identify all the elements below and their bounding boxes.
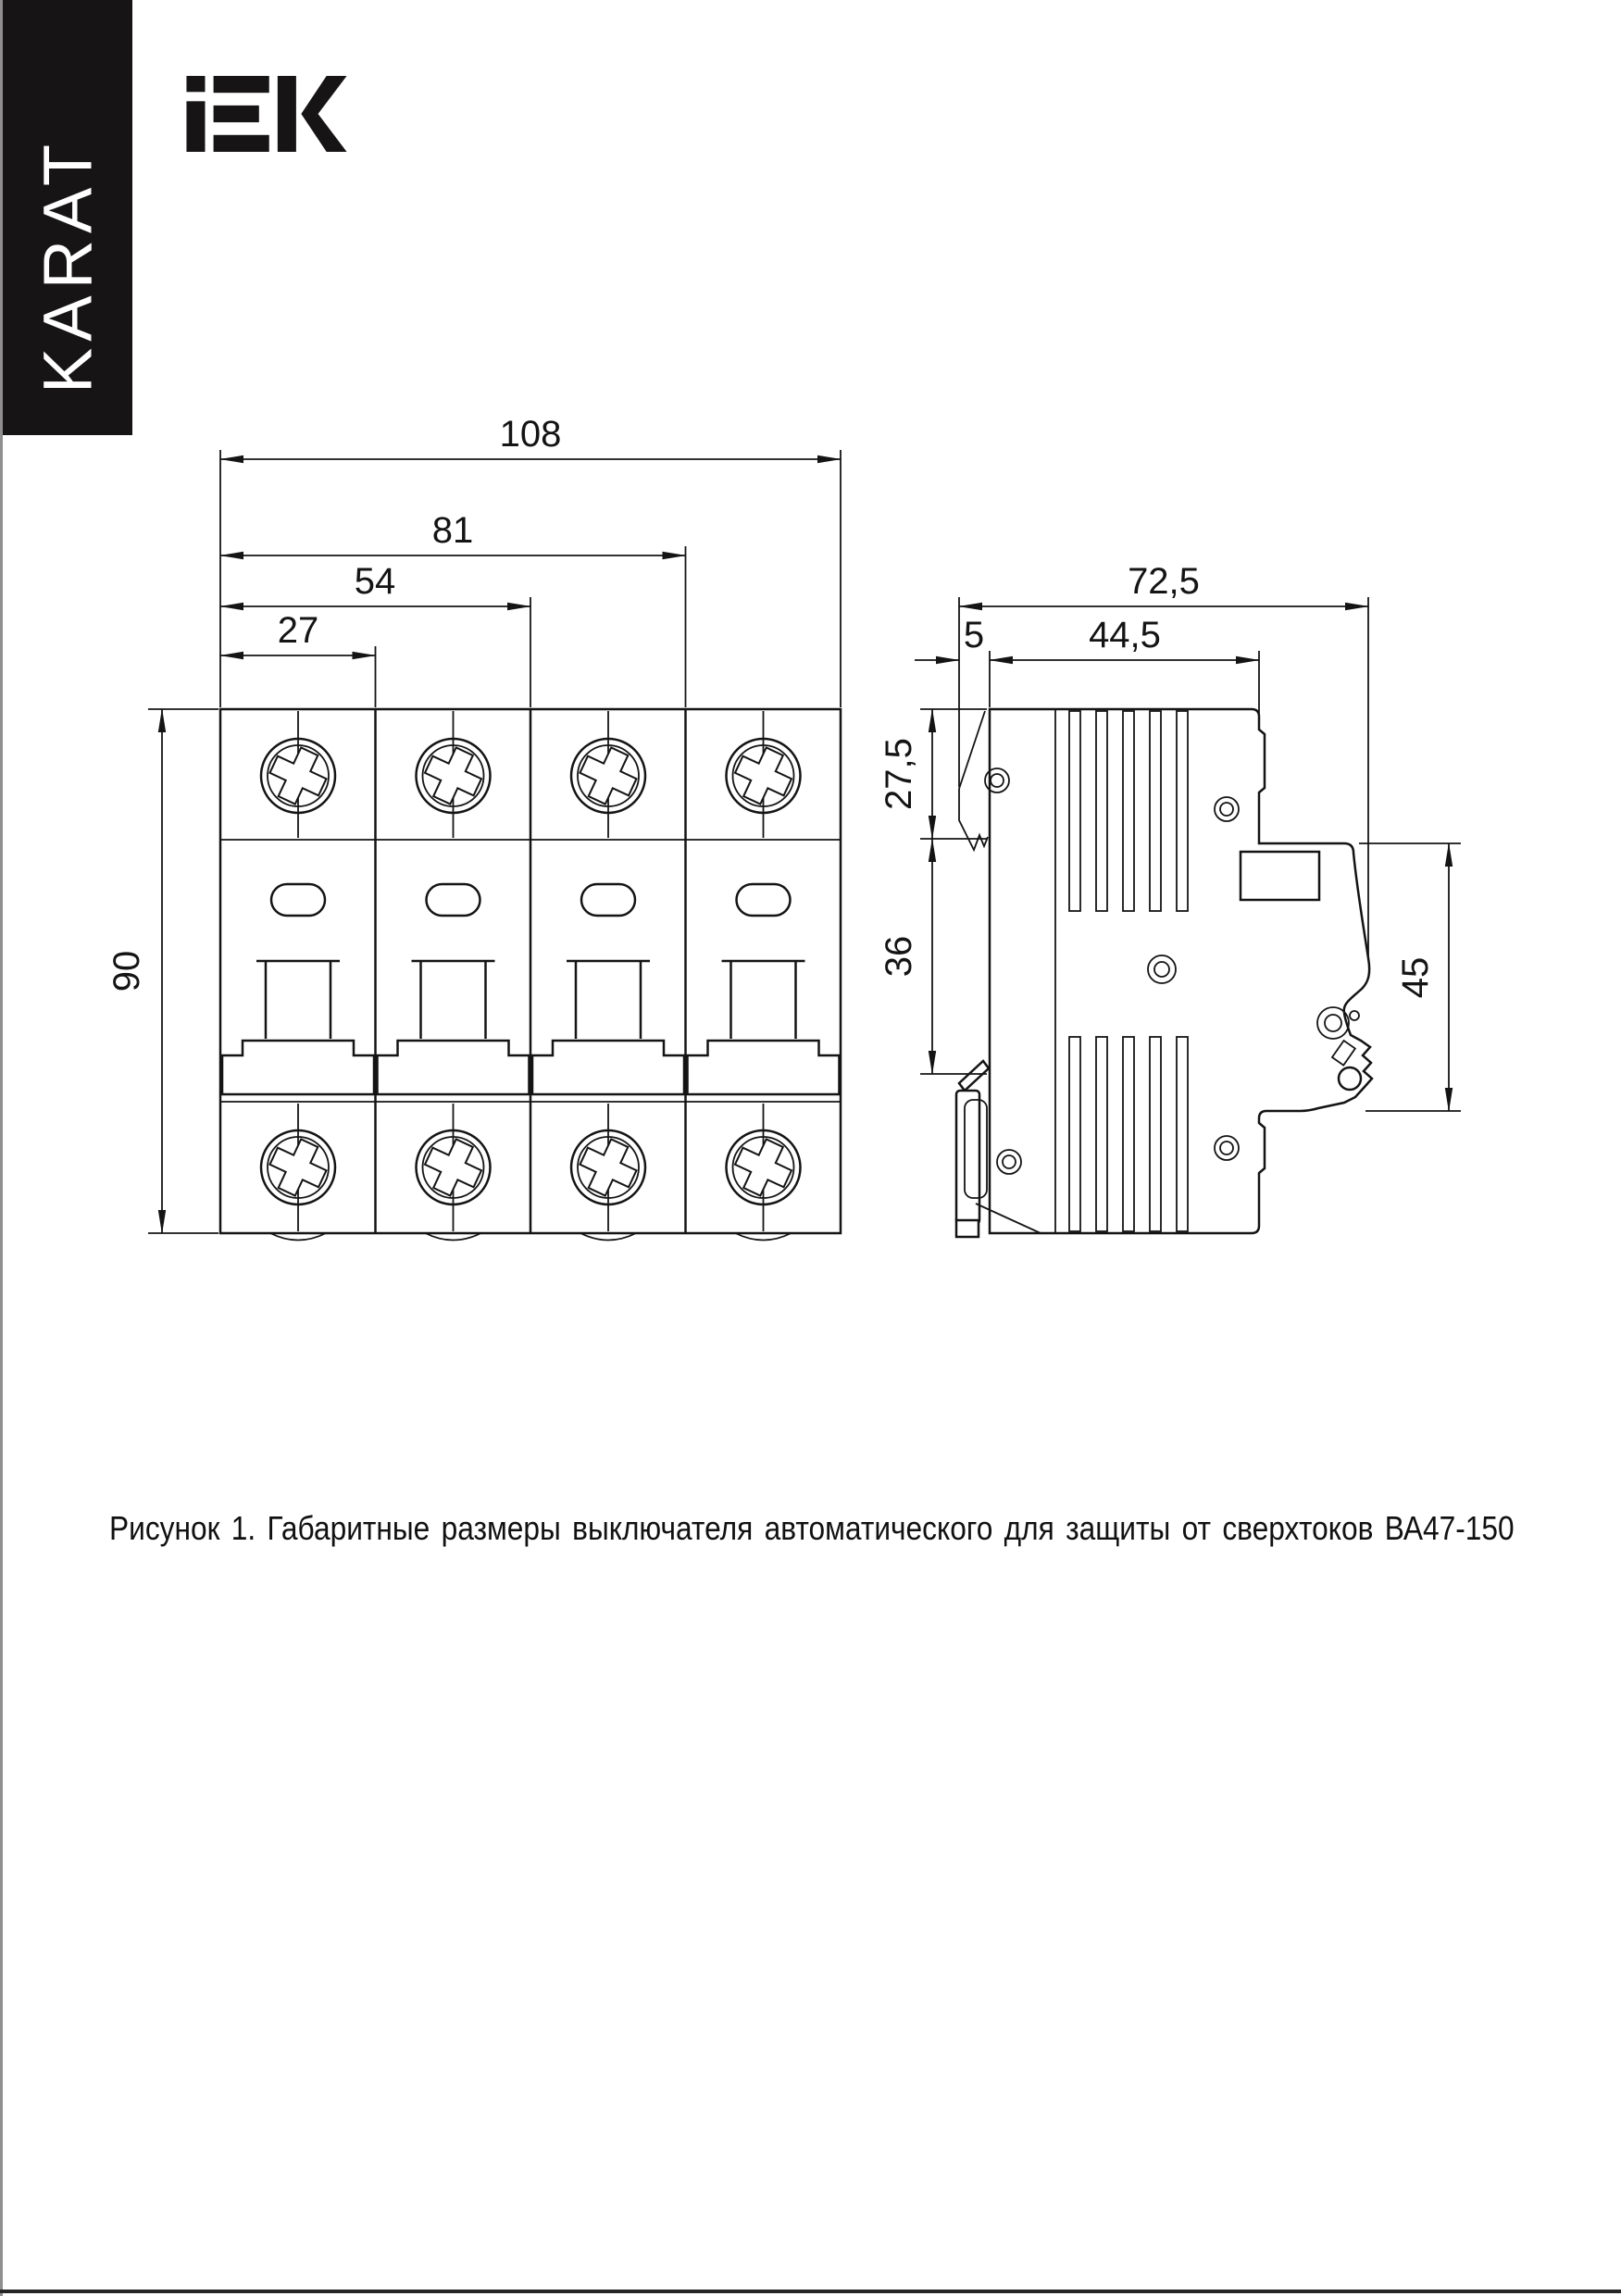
technical-drawing: 108 81 54 27 90: [0, 0, 1621, 2296]
dim-label-36: 36: [879, 936, 919, 978]
din-clip-tab: [959, 1061, 989, 1091]
dim-label-81: 81: [432, 510, 474, 551]
dim-label-72-5: 72,5: [1128, 561, 1200, 602]
dim-label-45: 45: [1395, 957, 1436, 999]
dim-label-5: 5: [964, 615, 984, 655]
side-body-outline: [990, 709, 1372, 1233]
dim-label-44-5: 44,5: [1089, 615, 1161, 655]
dim-label-54: 54: [355, 561, 396, 602]
din-clip-foot: [956, 1220, 979, 1237]
figure-caption: Рисунок 1. Габаритные размеры выключател…: [109, 1509, 1515, 1548]
front-view: 108 81 54 27 90: [106, 414, 841, 1241]
document-page: KARAT: [0, 0, 1621, 2296]
dim-label-27-5: 27,5: [879, 738, 919, 810]
din-hook-top: [959, 711, 988, 850]
dim-label-27: 27: [278, 610, 319, 651]
side-view: 72,5 5 44,5 27,5 36 45: [879, 561, 1461, 1237]
dim-label-108: 108: [500, 414, 562, 455]
toggle-handle-side: [1241, 852, 1319, 900]
dim-label-90: 90: [106, 951, 147, 992]
